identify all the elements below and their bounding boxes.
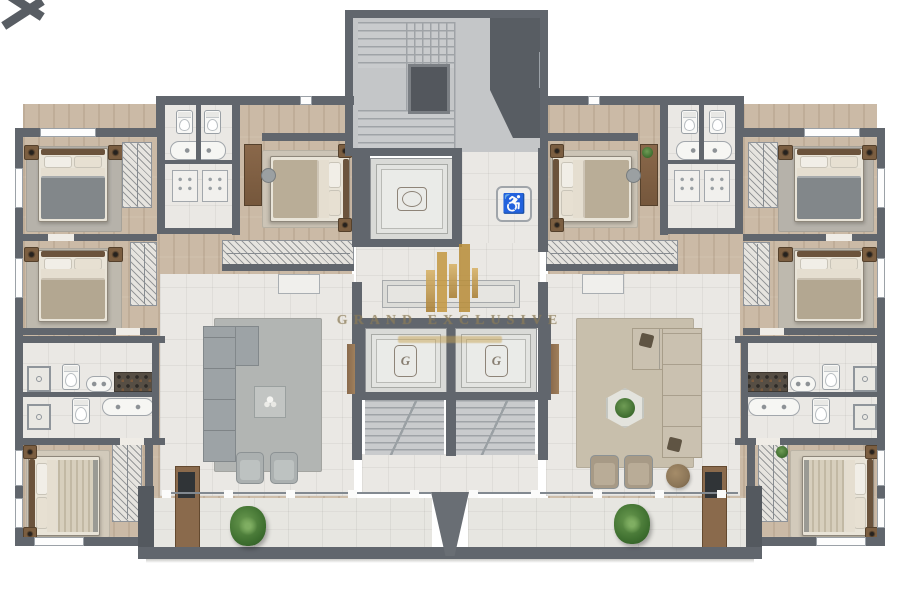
pouf (666, 464, 690, 488)
pillow (800, 156, 829, 168)
window (816, 537, 866, 546)
wall (157, 133, 165, 234)
wall (538, 148, 548, 252)
wardrobe-hall-left (222, 240, 354, 266)
bed-blanket (797, 278, 861, 319)
armchair (590, 455, 619, 489)
nightstand-lamp (24, 247, 39, 262)
headboard (797, 251, 861, 257)
watermark-brand-text: GRAND EXCLUSIVE (335, 313, 565, 329)
coffee-table (254, 386, 286, 418)
wall (741, 336, 748, 445)
plant-icon (642, 147, 653, 158)
bed-sheet (797, 168, 861, 177)
wall (660, 228, 743, 234)
armchair (624, 455, 653, 489)
wardrobe (122, 142, 152, 208)
pillow (328, 162, 341, 188)
drop-shadow (146, 559, 754, 563)
door-slit (588, 96, 600, 105)
desk-chair (626, 168, 641, 183)
wall (15, 234, 157, 241)
shoe-shelf (744, 372, 788, 392)
nightstand-lamp (862, 145, 877, 160)
door-gap (756, 438, 780, 445)
pillow (830, 258, 859, 270)
wall (345, 10, 353, 152)
door-gap (760, 328, 784, 335)
bed-blanket (804, 460, 845, 532)
console-table (582, 274, 624, 294)
sofa (662, 328, 702, 458)
nightstand-lamp (23, 445, 37, 459)
toilet (681, 110, 698, 134)
bed-blanket (41, 278, 105, 319)
sink (790, 376, 816, 392)
nightstand-lamp (862, 247, 877, 262)
bed (38, 250, 108, 322)
bed (794, 250, 864, 322)
wall (222, 264, 354, 271)
window (34, 537, 84, 546)
stair-flight-left (365, 400, 444, 455)
nightstand-lamp (108, 247, 123, 262)
pillow (561, 162, 574, 188)
window (15, 450, 23, 486)
lower-landing-floor (362, 454, 538, 494)
toilet (72, 398, 90, 424)
wall (743, 234, 885, 241)
elevator-monogram-icon: G (394, 345, 417, 377)
sofa (203, 326, 236, 462)
wash-counter (202, 170, 228, 202)
pillow (854, 463, 866, 495)
table-plant-icon (615, 398, 635, 418)
bed-blanket (56, 460, 97, 532)
bed-sheet (41, 269, 105, 277)
window (15, 258, 23, 298)
window (804, 128, 860, 137)
potted-plant-icon (614, 504, 650, 544)
window (15, 498, 23, 528)
wall (162, 96, 354, 105)
wall (546, 96, 738, 105)
gold-towers-logo-icon (424, 244, 478, 312)
bed (28, 456, 100, 536)
pillow (328, 190, 341, 216)
sink (86, 376, 112, 392)
toilet (812, 398, 830, 424)
headboard (797, 149, 861, 155)
wall (699, 104, 704, 162)
wall (152, 336, 159, 445)
bed (802, 456, 874, 536)
pillow (74, 156, 103, 168)
wall (452, 148, 462, 247)
wash-counter (704, 170, 730, 202)
toilet (709, 110, 726, 134)
window (40, 128, 96, 137)
console-table (278, 274, 320, 294)
wall (541, 318, 551, 400)
headboard (41, 149, 105, 155)
pillow (44, 156, 73, 168)
wardrobe-hall-right (546, 240, 678, 266)
pillow (854, 497, 866, 529)
wall (345, 10, 548, 18)
wardrobe (748, 142, 778, 208)
elevator-crest-icon (397, 187, 427, 211)
bed-sheet (797, 269, 861, 277)
wall (741, 392, 878, 397)
wall (660, 104, 668, 235)
bed (552, 156, 632, 222)
wash-counter (172, 170, 198, 202)
shower (853, 404, 877, 430)
window (15, 168, 23, 208)
headboard (41, 251, 105, 257)
wall (262, 133, 352, 141)
armchair (270, 452, 298, 484)
bed (38, 148, 108, 222)
pillow (561, 190, 574, 216)
elevator-monogram-icon: G (485, 345, 508, 377)
nightstand-lamp (778, 145, 793, 160)
nightstand-lamp (550, 218, 564, 232)
glass-door-right (469, 490, 738, 498)
wall (196, 104, 201, 162)
bed-blanket (273, 160, 319, 219)
wall (232, 104, 240, 235)
pillow (44, 258, 73, 270)
nightstand-lamp (108, 145, 123, 160)
bed-blanket (583, 160, 629, 219)
double-vanity (748, 398, 800, 416)
window (877, 450, 885, 486)
wall (22, 392, 159, 397)
pillow (74, 258, 103, 270)
nightstand-lamp (778, 247, 793, 262)
bed-blanket (41, 176, 105, 218)
pillow (36, 463, 48, 495)
pillow (36, 497, 48, 529)
wall (15, 336, 165, 343)
bed (794, 148, 864, 222)
wall (360, 148, 370, 247)
floor-plan-render: G G ♿ (0, 0, 900, 600)
wall (157, 228, 240, 234)
wall (355, 318, 365, 400)
bed-sheet (41, 168, 105, 177)
armchair (236, 452, 264, 484)
toilet (62, 364, 80, 390)
bed-sheet (47, 460, 56, 532)
plant-icon (776, 446, 788, 458)
glass-door-left (162, 490, 431, 498)
wash-counter (674, 170, 700, 202)
stair-core-shaft (408, 64, 450, 114)
bed-blanket (797, 176, 861, 218)
toilet (822, 364, 840, 390)
window (877, 498, 885, 528)
toilet (204, 110, 221, 134)
shower (853, 366, 877, 392)
wheelchair-icon: ♿ (496, 186, 532, 222)
wardrobe (130, 242, 157, 306)
wheelchair-glyph: ♿ (502, 192, 526, 216)
wall (352, 148, 360, 247)
wood-jamb (551, 344, 559, 394)
pillow (830, 156, 859, 168)
headboard (867, 459, 873, 532)
double-vanity (102, 398, 154, 416)
door-slit (300, 96, 312, 105)
bed-sheet (846, 460, 855, 532)
door-gap (826, 234, 852, 241)
door-gap (120, 438, 144, 445)
door-gap (116, 328, 140, 335)
nightstand-lamp (338, 218, 352, 232)
watermark-subtitle-strip (398, 336, 502, 343)
pillow (800, 258, 829, 270)
double-vanity (676, 141, 732, 160)
wood-jamb (347, 344, 355, 394)
toilet (176, 110, 193, 134)
wardrobe (743, 242, 770, 306)
desk (244, 144, 262, 206)
desk-chair (261, 168, 276, 183)
wall (548, 133, 638, 141)
headboard (29, 459, 35, 532)
nightstand-lamp (24, 145, 39, 160)
door-gap (48, 234, 74, 241)
wall (735, 133, 743, 234)
wall (540, 10, 548, 152)
bed (270, 156, 350, 222)
bed-sheet (573, 160, 583, 219)
bed-sheet (319, 160, 329, 219)
window (877, 258, 885, 298)
wall (546, 264, 678, 271)
wall (735, 336, 885, 343)
shower (27, 366, 51, 392)
window (877, 168, 885, 208)
headboard (343, 159, 349, 219)
headboard (553, 159, 559, 219)
wall (446, 398, 456, 456)
shower (27, 404, 51, 430)
stair-treads-lower (358, 110, 454, 152)
nightstand-lamp (550, 144, 564, 158)
potted-plant-icon (230, 506, 266, 546)
stair-flight-right (456, 400, 535, 455)
